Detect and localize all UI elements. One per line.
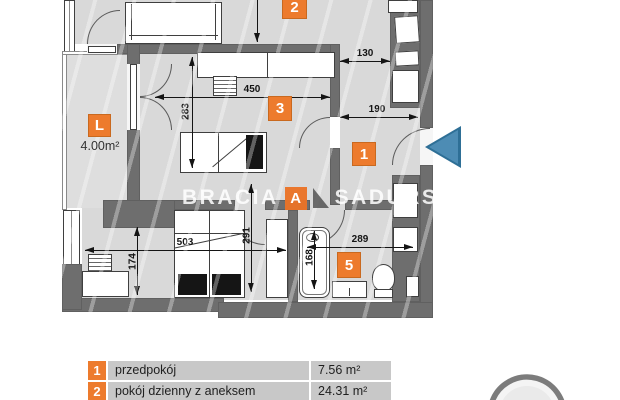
wall-balcony-lower	[127, 128, 140, 208]
dim-289-label: 289	[335, 234, 385, 245]
utility-fixture-3	[406, 276, 419, 297]
legend-row2-number-text: 2	[93, 384, 100, 399]
sofa-arm-right	[215, 4, 216, 40]
brand-logo-letter: A	[290, 190, 301, 207]
sofa	[125, 2, 222, 44]
chair-bedroom4	[88, 254, 112, 272]
dim-130-label: 130	[340, 48, 390, 59]
wall-bottom-left	[62, 298, 224, 312]
floorplan-page: 130 450 283 190 503 174 291 289 168 2 3 …	[0, 0, 620, 400]
room-label-living-text: 2	[290, 0, 298, 16]
legend-row1-area: 7.56 m²	[311, 361, 391, 380]
brand-logo-triangle-icon	[313, 188, 329, 208]
sofa-seat-line	[129, 35, 218, 36]
dim-283-arrow-down	[189, 159, 195, 168]
sofa-arm-left	[131, 4, 132, 40]
wall-bottom-right	[218, 302, 433, 318]
wall-balcony-upper	[127, 44, 140, 66]
dim-283-line	[192, 57, 193, 168]
wall-bed-bath	[288, 210, 298, 302]
legend-row2-number: 2	[88, 382, 106, 400]
room-label-bedroom3: 3	[268, 96, 292, 121]
double-bed-pillow-left	[178, 274, 207, 295]
wall-left-bottom	[62, 264, 82, 310]
dim-503-label: 503	[160, 237, 210, 248]
room-label-hall-text: 1	[360, 146, 368, 163]
dim-291-arrow-down	[248, 283, 254, 292]
dim-289-line	[307, 247, 413, 248]
dim-503-arrow-left	[85, 247, 94, 253]
brand-watermark: BRACIA A SADURSCY	[182, 184, 473, 212]
room-label-bedroom3-text: 3	[276, 100, 284, 117]
wall-middle-block	[103, 200, 175, 228]
floor-living-room	[68, 0, 420, 44]
toilet-bowl	[372, 264, 395, 291]
window-bottom-left-mullion	[71, 211, 72, 265]
door-leaf-balcony-living	[88, 46, 116, 53]
sink-cabinet-handle	[349, 288, 350, 296]
room-label-bathroom: 5	[337, 252, 361, 278]
desk-bedroom4	[82, 271, 129, 297]
door-leaf-balcony-bedroom3	[130, 64, 137, 130]
window-top-left-mullion	[69, 1, 70, 53]
dim-top-arrow	[254, 33, 260, 42]
dim-450-arrow-left	[155, 94, 164, 100]
dim-450-arrow-right	[321, 94, 330, 100]
double-bed-pillow-right	[212, 274, 241, 295]
toilet-tank	[374, 289, 393, 298]
dim-168-label: 168	[305, 240, 316, 276]
single-bed-divider	[218, 133, 219, 172]
room-label-living: 2	[282, 0, 307, 19]
dim-190-label: 190	[352, 104, 402, 115]
dim-291-label: 291	[242, 218, 253, 254]
dim-190-line	[340, 117, 418, 118]
legend-row1-number: 1	[88, 361, 106, 380]
entrance-arrow-icon	[429, 130, 458, 164]
watermark-word-1: BRACIA	[182, 186, 279, 210]
kitchen-fixture-2	[394, 15, 420, 44]
wardrobe-bedroom3	[197, 52, 335, 78]
kitchen-fixture-1	[388, 0, 418, 13]
legend-row2-name: pokój dzienny z aneksem	[108, 382, 309, 400]
brand-logo-icon: A	[285, 187, 307, 210]
agency-circle-logo	[467, 355, 587, 400]
balcony-label: L	[88, 114, 111, 137]
legend-row1-number-text: 1	[93, 363, 100, 378]
wardrobe-divider	[267, 53, 268, 77]
tall-cabinet	[266, 219, 288, 298]
kitchen-fixture-4	[392, 70, 419, 103]
single-bed-pillow	[246, 135, 263, 169]
dim-174-label: 174	[128, 244, 139, 280]
dim-190-arrow-left	[340, 114, 349, 120]
dim-289-arrow-right	[404, 244, 413, 250]
dim-174-arrow-up	[134, 227, 140, 236]
dim-168-arrow-down	[311, 280, 317, 289]
kitchen-fixture-3	[395, 50, 420, 66]
room-label-hall: 1	[352, 142, 376, 166]
dim-190-arrow-right	[409, 114, 418, 120]
legend-row1-name: przedpokój	[108, 361, 309, 380]
dim-283-label: 283	[181, 94, 192, 130]
legend-row2-area: 24.31 m²	[311, 382, 391, 400]
dim-503-line	[85, 250, 286, 251]
balcony-railing-left	[62, 54, 67, 210]
dim-174-arrow-down	[134, 286, 140, 295]
watermark-word-2: SADURSCY	[335, 186, 473, 210]
dim-503-arrow-right	[277, 247, 286, 253]
room-label-bathroom-text: 5	[345, 257, 353, 274]
balcony-area-text: 4.00m²	[76, 139, 124, 153]
balcony-label-text: L	[95, 117, 104, 134]
dim-450-label: 450	[227, 84, 277, 95]
dim-283-arrow-up	[189, 57, 195, 66]
double-bed-center-line	[209, 211, 210, 297]
wall-right-upper	[420, 0, 433, 128]
